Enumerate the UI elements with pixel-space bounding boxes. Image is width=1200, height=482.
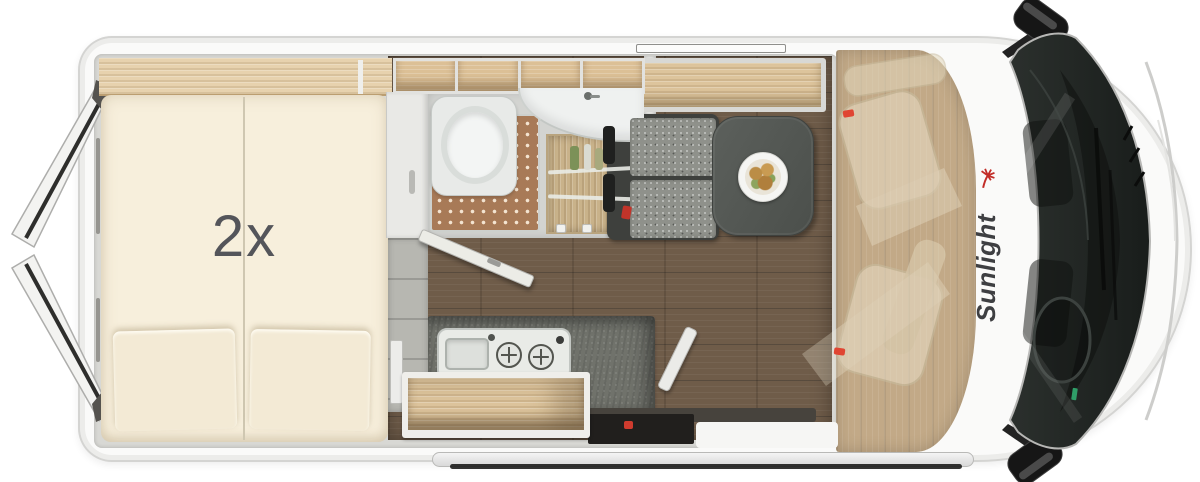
- step-shadow: [450, 464, 962, 469]
- bench-headrest: [603, 174, 615, 212]
- seatbelt-red-marker: [834, 347, 846, 355]
- bench-headrest: [603, 126, 615, 164]
- bench-cushion: [630, 118, 716, 176]
- burner-icon: [496, 342, 522, 368]
- kitchen-shelf-interior: [408, 378, 584, 430]
- bed-headboard-shelf: [99, 58, 392, 96]
- kitchen-sink-bowl: [445, 338, 489, 370]
- locker-cell: [521, 61, 580, 91]
- rear-door-seal-bottom: [96, 298, 100, 362]
- shelf-divider: [358, 60, 363, 94]
- bed-quantity-label: 2x: [101, 202, 388, 272]
- rear-door-seal-top: [96, 138, 100, 234]
- locker-cell: [396, 61, 455, 91]
- brand-logo-text: Sunlight: [971, 188, 1001, 348]
- burner-icon: [528, 344, 554, 370]
- cab-floor: [836, 50, 976, 452]
- stove-knob-icon: [556, 336, 564, 344]
- b-pillar: [696, 422, 838, 448]
- wardrobe-handle: [409, 170, 415, 194]
- wardrobe-cabinet: [386, 92, 428, 238]
- pillow-left: [113, 328, 238, 431]
- bottle-icon: [584, 144, 591, 170]
- kitchen-faucet-icon: [488, 334, 495, 341]
- towel-hook-icon: [582, 224, 592, 233]
- camper-van-floorplan: 2x: [0, 0, 1200, 482]
- locker-cell: [583, 61, 642, 91]
- plate-of-food-icon: [745, 159, 781, 195]
- towel-hook-icon: [556, 224, 566, 233]
- bottle-icon: [570, 146, 579, 170]
- toilet-icon: [441, 106, 509, 184]
- bench-cushion: [630, 180, 716, 238]
- dinette-overhead-locker: [616, 58, 826, 112]
- wall-window-strip: [636, 44, 786, 53]
- door-latch-red-marker: [624, 421, 633, 429]
- entry-step-well: [588, 414, 694, 444]
- sink-faucet-arm: [590, 95, 600, 98]
- pillow-right: [249, 329, 371, 431]
- bottle-icon: [595, 148, 603, 170]
- locker-cell: [458, 61, 517, 91]
